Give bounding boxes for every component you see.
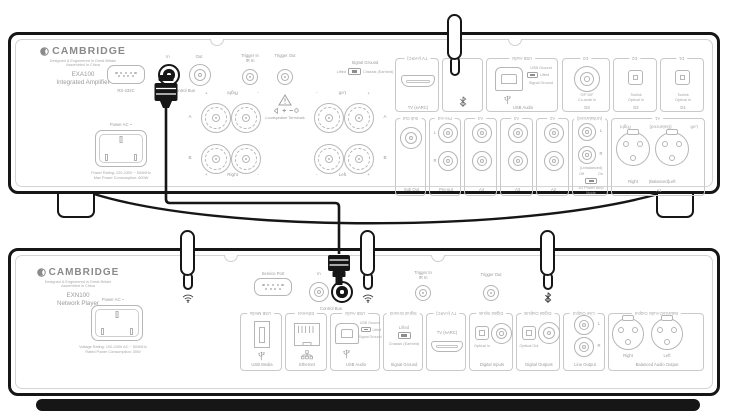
diagram-canvas: CAMBRIDGE Designed & Engineered in Great… xyxy=(0,0,735,415)
control-bus-cable xyxy=(0,0,735,415)
